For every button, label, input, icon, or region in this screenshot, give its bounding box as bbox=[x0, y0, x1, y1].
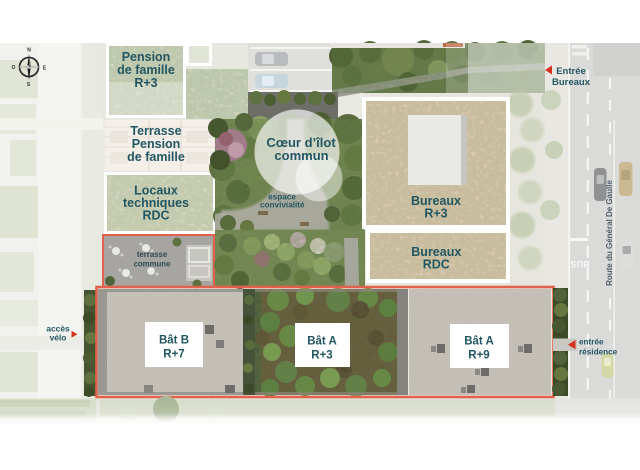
svg-text:R+3: R+3 bbox=[134, 76, 157, 90]
svg-text:RDC: RDC bbox=[423, 258, 450, 272]
svg-text:N: N bbox=[27, 48, 31, 54]
svg-text:R+3: R+3 bbox=[424, 207, 447, 221]
svg-text:Bât A: Bât A bbox=[307, 336, 337, 348]
svg-text:Pension: Pension bbox=[132, 137, 181, 151]
svg-text:commun: commun bbox=[274, 148, 328, 163]
svg-text:convivialité: convivialité bbox=[260, 201, 305, 210]
svg-text:Entrée: Entrée bbox=[556, 66, 586, 77]
svg-text:de famille: de famille bbox=[127, 150, 185, 164]
svg-text:de famille: de famille bbox=[117, 63, 175, 77]
svg-text:Bât B: Bât B bbox=[159, 335, 189, 347]
svg-text:R+9: R+9 bbox=[468, 350, 489, 362]
svg-text:Bureaux: Bureaux bbox=[552, 77, 591, 88]
svg-text:O: O bbox=[12, 65, 16, 71]
svg-text:RDC: RDC bbox=[142, 209, 169, 223]
svg-text:commune: commune bbox=[134, 260, 171, 269]
svg-text:entrée: entrée bbox=[579, 338, 604, 347]
svg-text:R+7: R+7 bbox=[163, 349, 184, 361]
svg-text:terrasse: terrasse bbox=[137, 250, 168, 259]
svg-text:vélo: vélo bbox=[50, 333, 67, 343]
svg-text:BUS: BUS bbox=[570, 259, 589, 269]
svg-text:Pension: Pension bbox=[122, 50, 171, 64]
svg-text:Bât A: Bât A bbox=[464, 336, 494, 348]
svg-text:R+3: R+3 bbox=[311, 350, 332, 362]
svg-text:résidence: résidence bbox=[579, 348, 618, 357]
svg-text:Terrasse: Terrasse bbox=[130, 124, 181, 138]
svg-text:Route du Général De Gaulle: Route du Général De Gaulle bbox=[605, 180, 614, 286]
